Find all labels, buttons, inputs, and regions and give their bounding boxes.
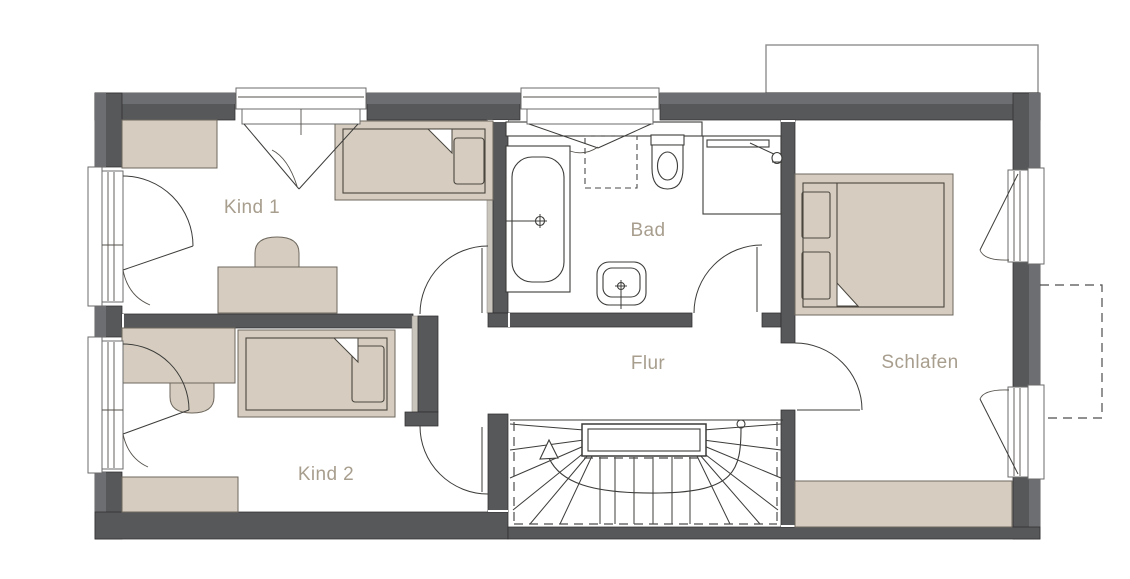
casement-window-right-lower: [980, 385, 1044, 479]
wall-kind2-flur: [418, 316, 438, 412]
desk-icon: [122, 328, 235, 413]
room-label-bad: Bad: [630, 220, 665, 241]
desk-icon: [218, 237, 337, 313]
kind1-furniture: [122, 120, 493, 313]
stair-well-box: [582, 424, 706, 456]
sink-icon: [597, 262, 646, 309]
toilet-icon: [651, 135, 684, 189]
wardrobe-icon: [122, 120, 217, 168]
direction-arrowhead: [540, 440, 558, 459]
chair-icon: [255, 237, 299, 267]
shower-icon: [703, 136, 782, 214]
door-swing-bad: [694, 245, 762, 313]
door-swing-kind1: [420, 246, 488, 314]
schlafen-furniture: [795, 174, 1012, 527]
room-label-schlafen: Schlafen: [881, 352, 958, 373]
single-bed-icon: [335, 121, 493, 200]
casement-window-top-bad: [521, 88, 659, 153]
door-swing-kind2: [420, 426, 488, 494]
room-label-kind2: Kind 2: [298, 464, 354, 485]
casement-window-left-kind1: [88, 167, 193, 306]
roof-outline: [766, 45, 1038, 93]
wall-bad-flur-east: [762, 313, 781, 327]
wall-bad-flur-west: [488, 313, 692, 327]
wardrobe-icon: [795, 481, 1012, 527]
casement-window-right-upper: [980, 168, 1044, 264]
door-swing-schlafen: [795, 343, 862, 410]
room-label-kind1: Kind 1: [224, 197, 280, 218]
double-bed-icon: [795, 174, 953, 315]
bathtub-icon: [506, 146, 570, 292]
floorplan-canvas: Kind 1 Kind 2 Bad Flur Schlafen: [0, 0, 1130, 579]
floorplan-drawing: Kind 1 Kind 2 Bad Flur Schlafen: [0, 0, 1130, 579]
wall-schlafen-west-lower: [781, 410, 795, 527]
room-label-flur: Flur: [631, 353, 666, 374]
wall-kind1-kind2: [122, 314, 413, 328]
single-bed-icon: [238, 330, 395, 417]
skylight-dashed-outline: [585, 136, 637, 188]
wall-stairs-west: [488, 414, 508, 512]
wall-schlafen-west-upper: [781, 120, 795, 343]
winder-staircase-icon: [510, 420, 783, 524]
bathroom-fixtures: [506, 122, 782, 309]
chair-icon: [170, 383, 214, 413]
balcony-outline-dashed: [1040, 285, 1102, 418]
sideboard-icon: [122, 477, 238, 512]
